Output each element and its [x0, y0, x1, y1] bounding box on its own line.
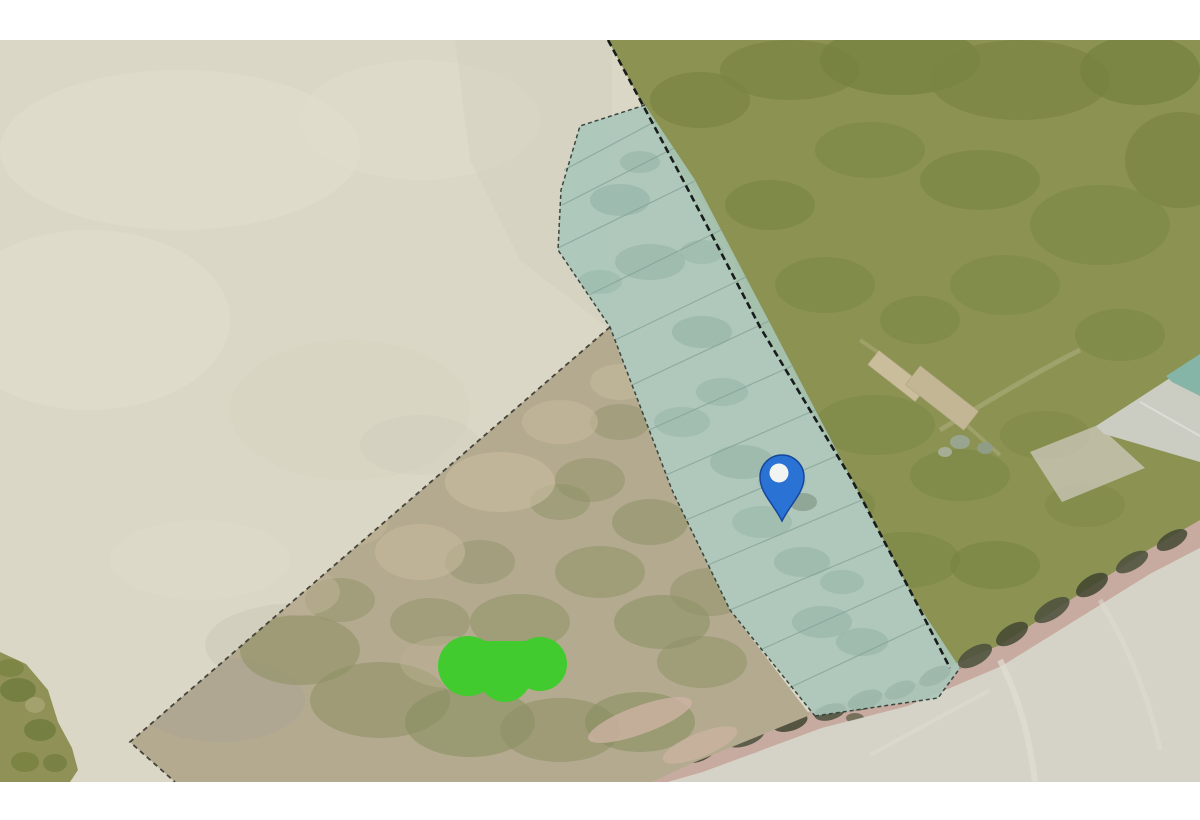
map-viewport[interactable] — [0, 0, 1200, 820]
frame-top-strip — [0, 0, 1200, 40]
pin-center-dot — [770, 464, 789, 483]
frame-bottom-strip — [0, 782, 1200, 820]
map-canvas[interactable] — [0, 0, 1200, 820]
aerial-imagery[interactable] — [0, 25, 1200, 782]
